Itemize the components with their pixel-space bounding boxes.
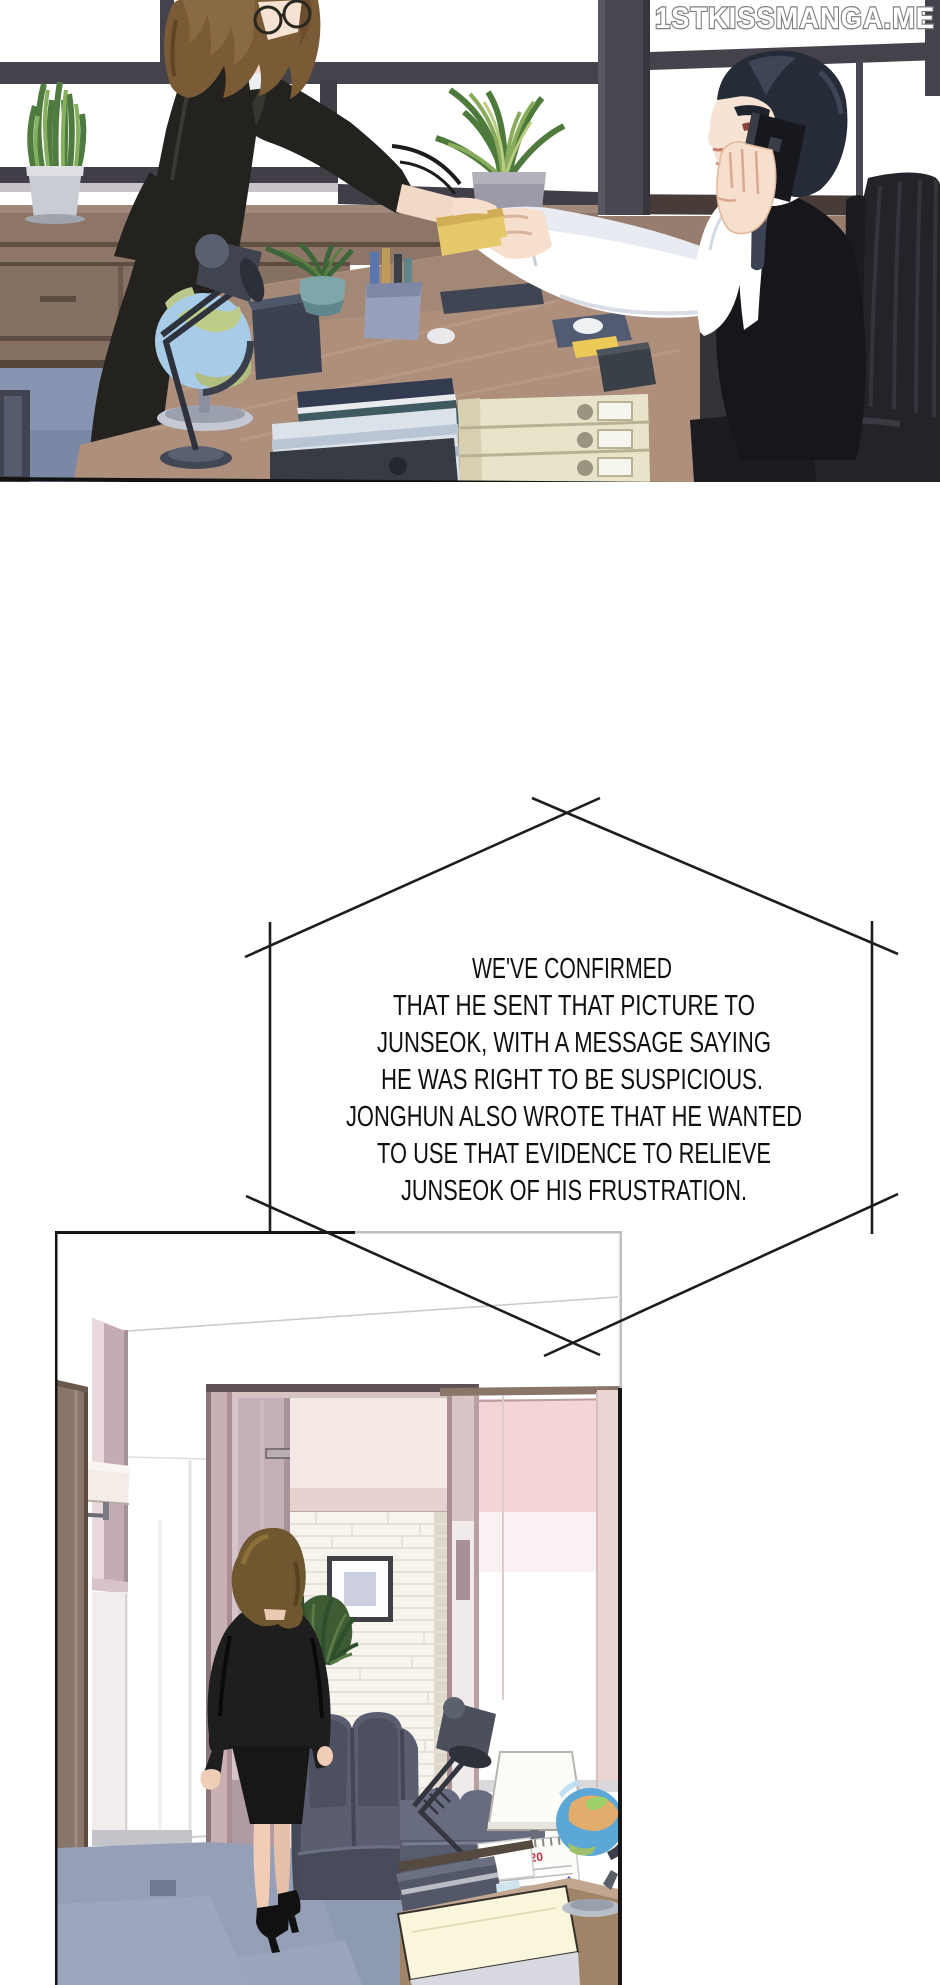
svg-text:WE'VE CONFIRMED: WE'VE CONFIRMED (472, 953, 672, 985)
svg-text:JUNSEOK, WITH A MESSAGE SAYING: JUNSEOK, WITH A MESSAGE SAYING (377, 1027, 771, 1059)
svg-text:JONGHUN ALSO WROTE THAT HE WAN: JONGHUN ALSO WROTE THAT HE WANTED (346, 1101, 802, 1133)
svg-text:THAT HE SENT THAT PICTURE TO: THAT HE SENT THAT PICTURE TO (393, 990, 755, 1022)
svg-text:TO USE THAT EVIDENCE TO RELIEV: TO USE THAT EVIDENCE TO RELIEVE (377, 1138, 771, 1170)
svg-text:1STKISSMANGA.ME: 1STKISSMANGA.ME (655, 2, 935, 35)
svg-text:HE WAS RIGHT TO BE SUSPICIOUS.: HE WAS RIGHT TO BE SUSPICIOUS. (381, 1064, 763, 1096)
